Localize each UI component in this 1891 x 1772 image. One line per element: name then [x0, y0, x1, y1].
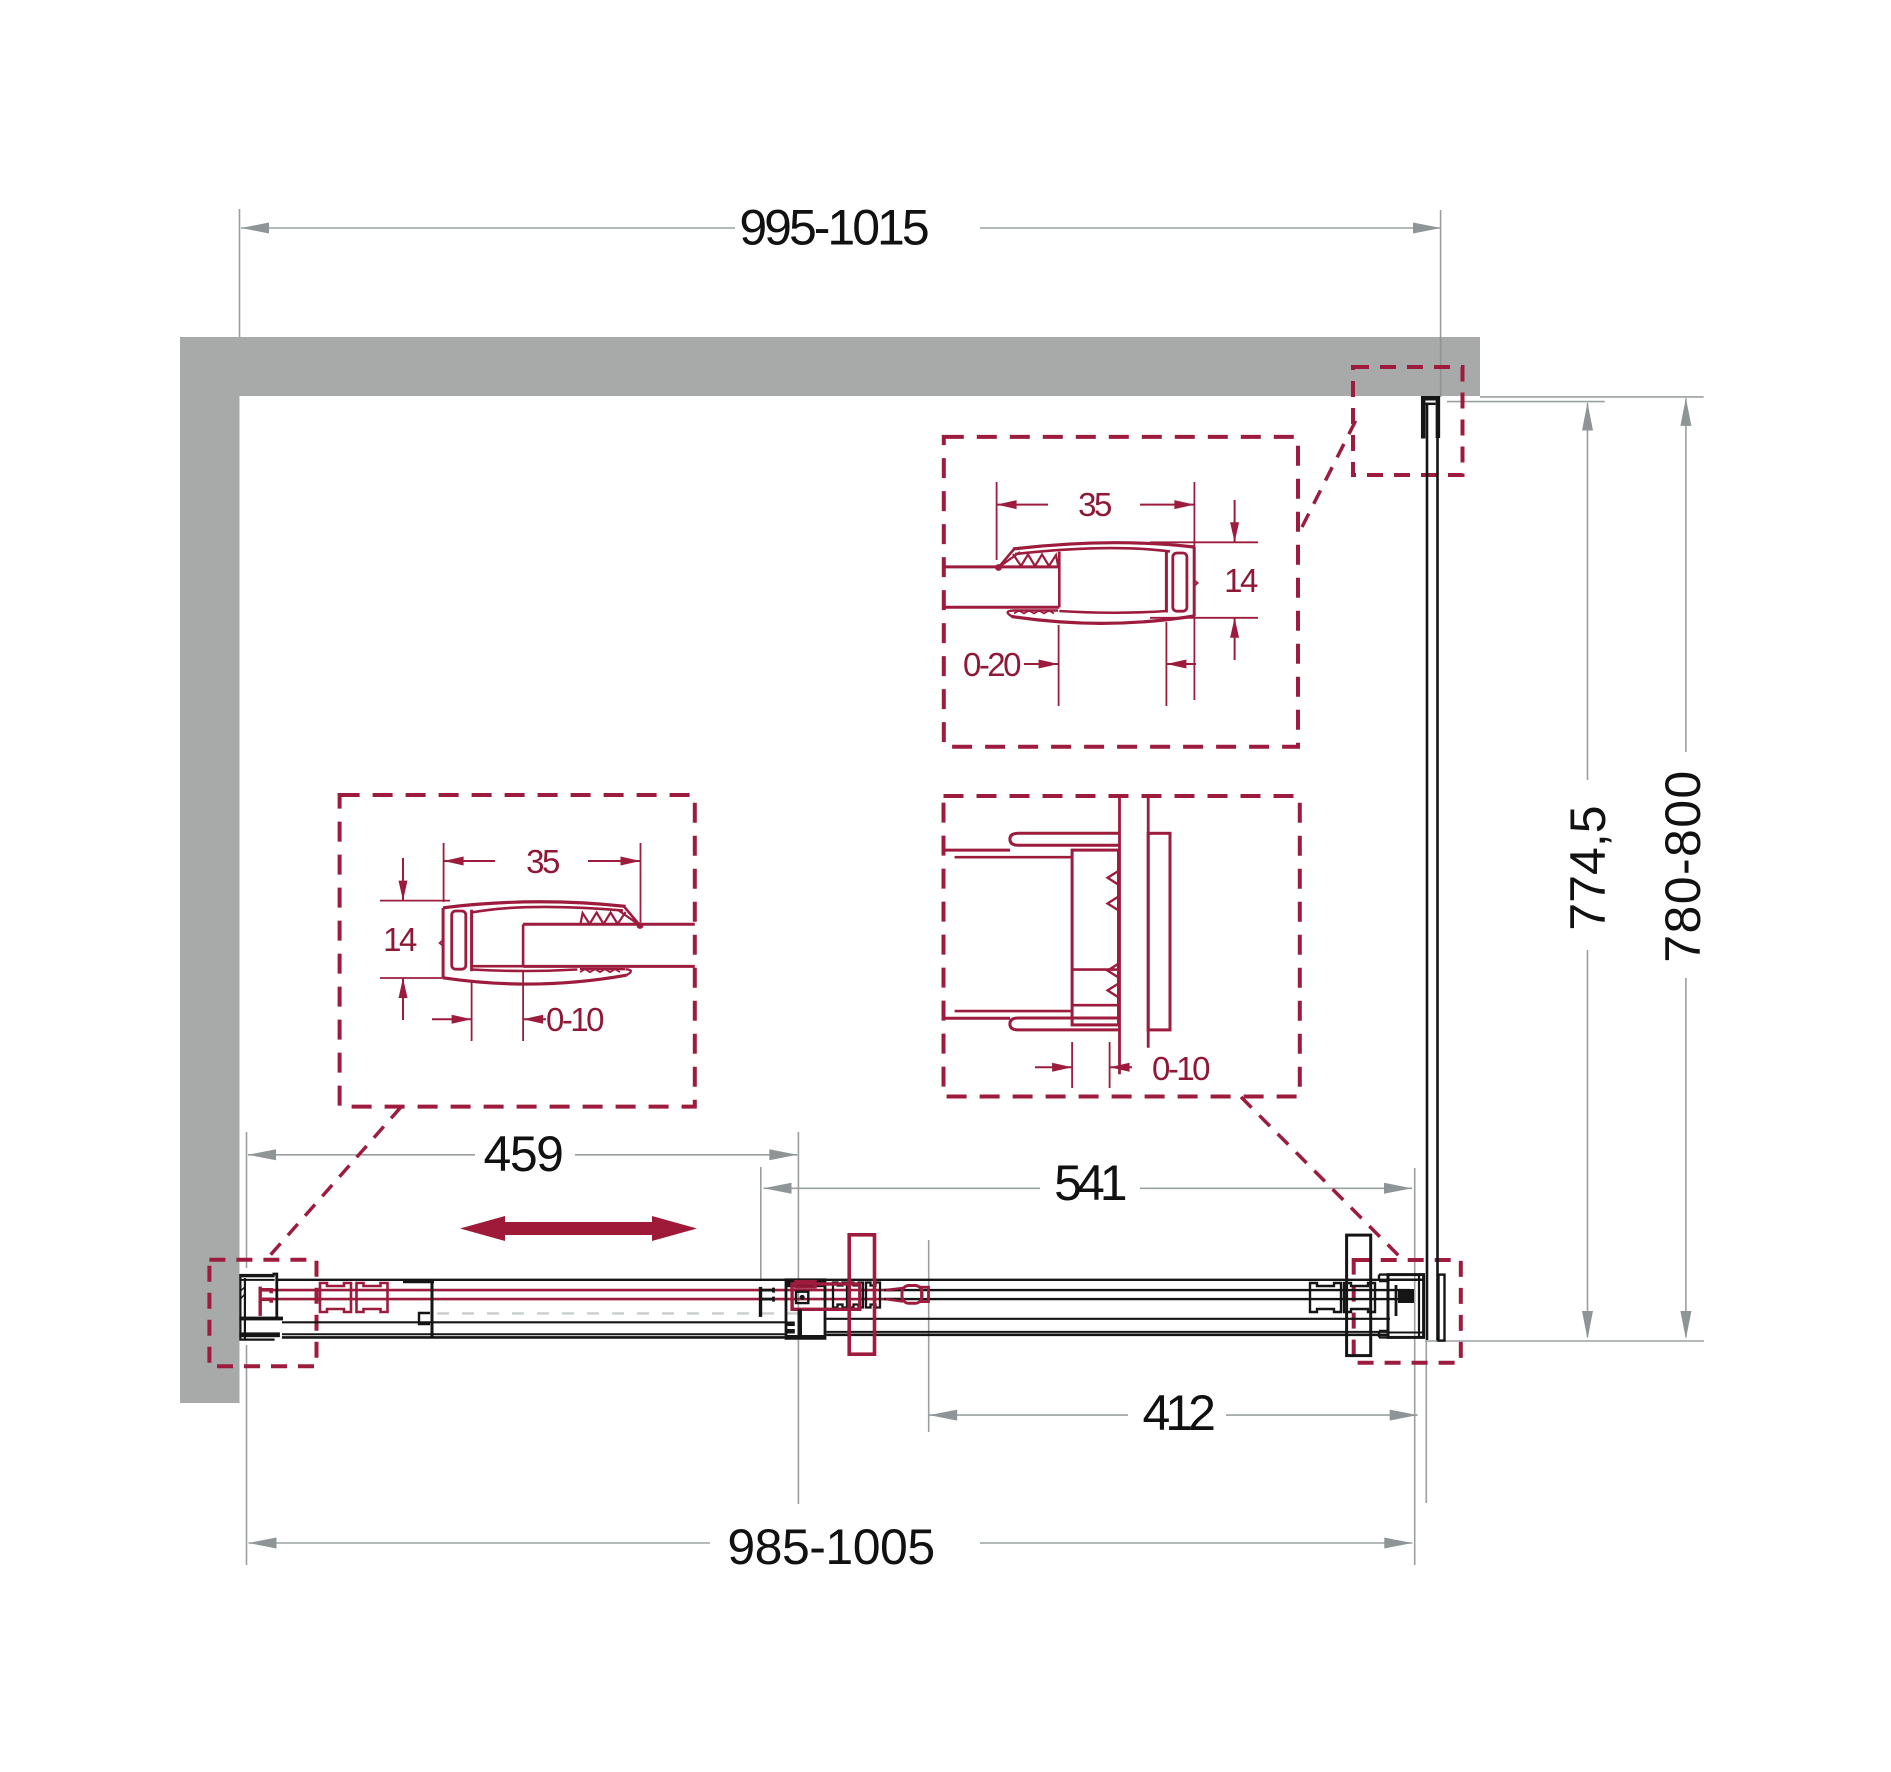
svg-text:780-800: 780-800	[1655, 769, 1711, 962]
svg-text:35: 35	[1078, 486, 1111, 523]
svg-text:774,5: 774,5	[1560, 805, 1616, 930]
svg-text:14: 14	[383, 921, 417, 958]
svg-text:995-1015: 995-1015	[739, 200, 927, 256]
svg-text:985-1005: 985-1005	[727, 1519, 934, 1575]
svg-text:412: 412	[1142, 1385, 1214, 1441]
svg-text:459: 459	[484, 1126, 563, 1182]
svg-text:0-20: 0-20	[963, 646, 1021, 683]
svg-text:0-10: 0-10	[546, 1001, 604, 1038]
svg-text:35: 35	[526, 843, 559, 880]
svg-text:14: 14	[1224, 562, 1258, 599]
svg-text:0-10: 0-10	[1152, 1050, 1210, 1087]
svg-text:541: 541	[1054, 1155, 1126, 1211]
